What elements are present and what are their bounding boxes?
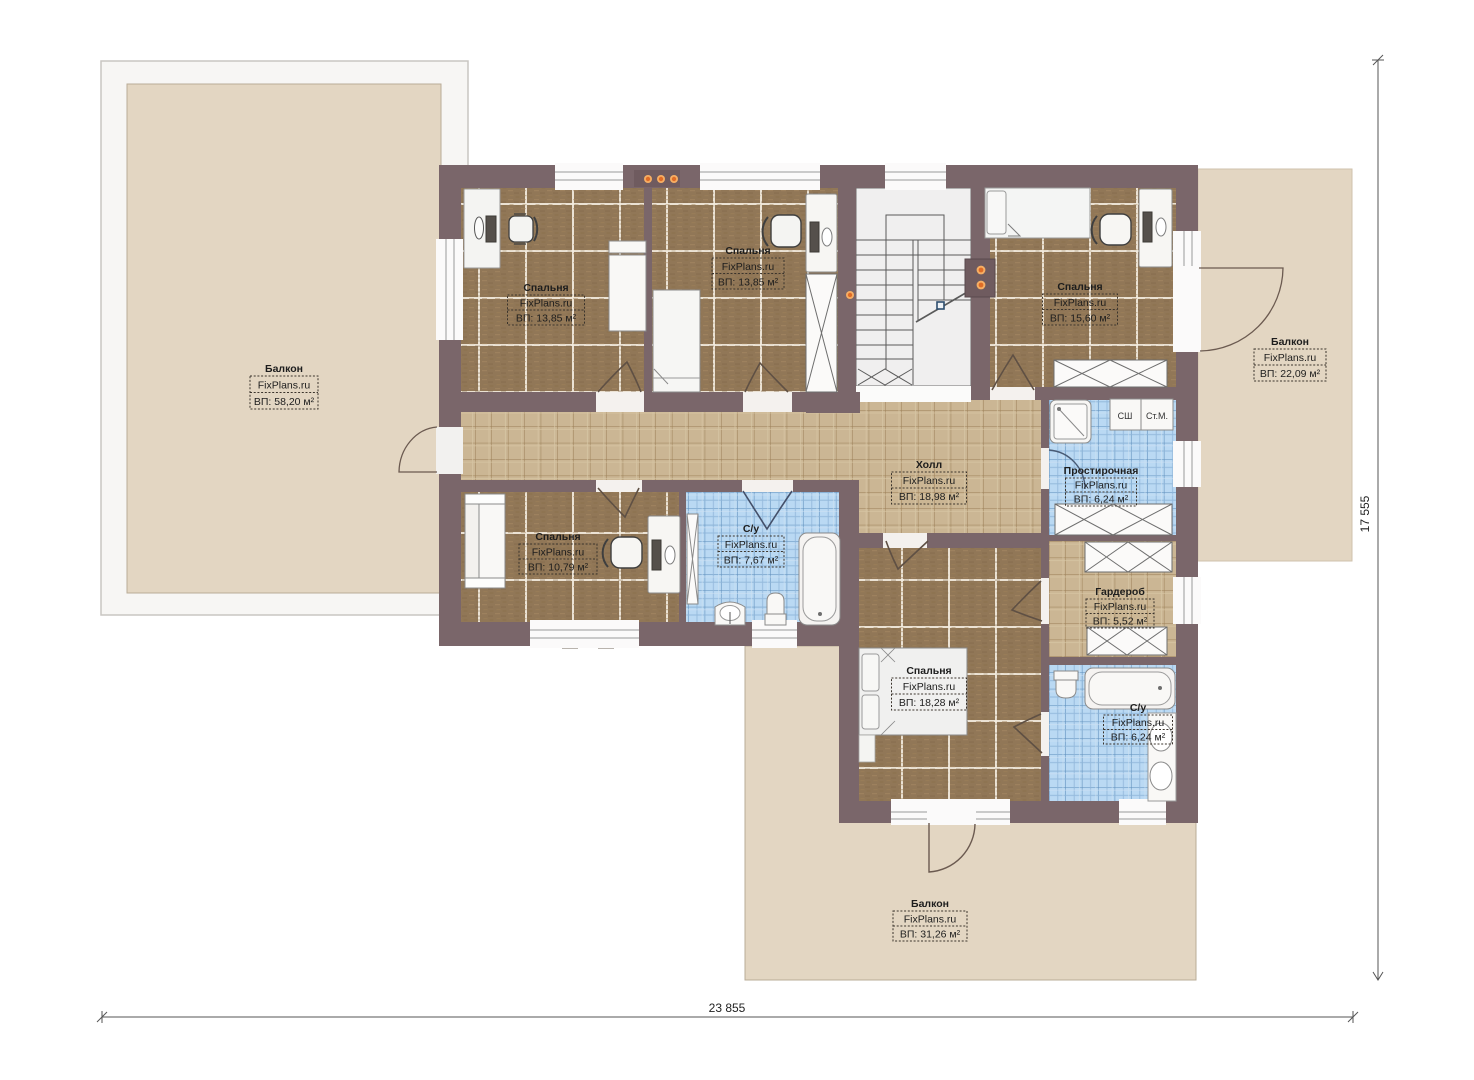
svg-text:Спальня: Спальня	[523, 282, 568, 294]
svg-text:ВП: 10,79 м²: ВП: 10,79 м²	[528, 561, 589, 573]
svg-text:С/у: С/у	[1130, 702, 1147, 714]
svg-text:FixPlans.ru: FixPlans.ru	[903, 681, 956, 693]
svg-text:ВП: 22,09 м²: ВП: 22,09 м²	[1260, 368, 1321, 380]
svg-text:FixPlans.ru: FixPlans.ru	[1112, 717, 1165, 729]
svg-text:Простирочная: Простирочная	[1064, 465, 1139, 477]
svg-text:ВП: 15,60 м²: ВП: 15,60 м²	[1050, 312, 1111, 324]
svg-text:FixPlans.ru: FixPlans.ru	[520, 297, 573, 309]
svg-text:Спальня: Спальня	[725, 245, 770, 257]
svg-text:ВП: 7,67 м²: ВП: 7,67 м²	[724, 554, 779, 566]
svg-text:FixPlans.ru: FixPlans.ru	[722, 261, 775, 273]
svg-text:FixPlans.ru: FixPlans.ru	[725, 539, 778, 551]
svg-text:FixPlans.ru: FixPlans.ru	[258, 380, 311, 392]
svg-text:ВП: 6,24 м²: ВП: 6,24 м²	[1111, 732, 1166, 744]
svg-text:ВП: 5,52 м²: ВП: 5,52 м²	[1093, 616, 1148, 628]
svg-text:ВП: 13,85 м²: ВП: 13,85 м²	[718, 276, 779, 288]
svg-text:ВП: 31,26 м²: ВП: 31,26 м²	[900, 928, 961, 940]
svg-text:С/у: С/у	[743, 523, 760, 535]
svg-text:Холл: Холл	[916, 459, 942, 471]
svg-text:Гардероб: Гардероб	[1095, 586, 1145, 598]
svg-text:ВП: 6,24 м²: ВП: 6,24 м²	[1074, 494, 1129, 506]
svg-text:17 555: 17 555	[1358, 495, 1372, 532]
svg-text:FixPlans.ru: FixPlans.ru	[532, 546, 585, 558]
svg-text:Балкон: Балкон	[1271, 336, 1309, 348]
svg-text:СШ: СШ	[1118, 411, 1133, 421]
svg-text:ВП: 13,85 м²: ВП: 13,85 м²	[516, 312, 577, 324]
svg-text:ВП: 58,20 м²: ВП: 58,20 м²	[254, 396, 315, 408]
svg-text:Спальня: Спальня	[1057, 281, 1102, 293]
svg-text:Балкон: Балкон	[265, 363, 303, 375]
svg-text:Спальня: Спальня	[535, 531, 580, 543]
svg-text:Спальня: Спальня	[906, 665, 951, 677]
svg-text:ВП: 18,98 м²: ВП: 18,98 м²	[899, 491, 960, 503]
svg-text:Балкон: Балкон	[911, 898, 949, 910]
svg-text:FixPlans.ru: FixPlans.ru	[1054, 297, 1107, 309]
svg-text:FixPlans.ru: FixPlans.ru	[1094, 601, 1147, 613]
svg-text:ВП: 18,28 м²: ВП: 18,28 м²	[899, 697, 960, 709]
svg-text:FixPlans.ru: FixPlans.ru	[1075, 480, 1128, 492]
svg-text:FixPlans.ru: FixPlans.ru	[904, 913, 957, 925]
svg-text:FixPlans.ru: FixPlans.ru	[903, 475, 956, 487]
svg-text:Ст.М.: Ст.М.	[1146, 411, 1168, 421]
svg-text:23 855: 23 855	[709, 1001, 746, 1015]
svg-text:FixPlans.ru: FixPlans.ru	[1264, 352, 1317, 364]
